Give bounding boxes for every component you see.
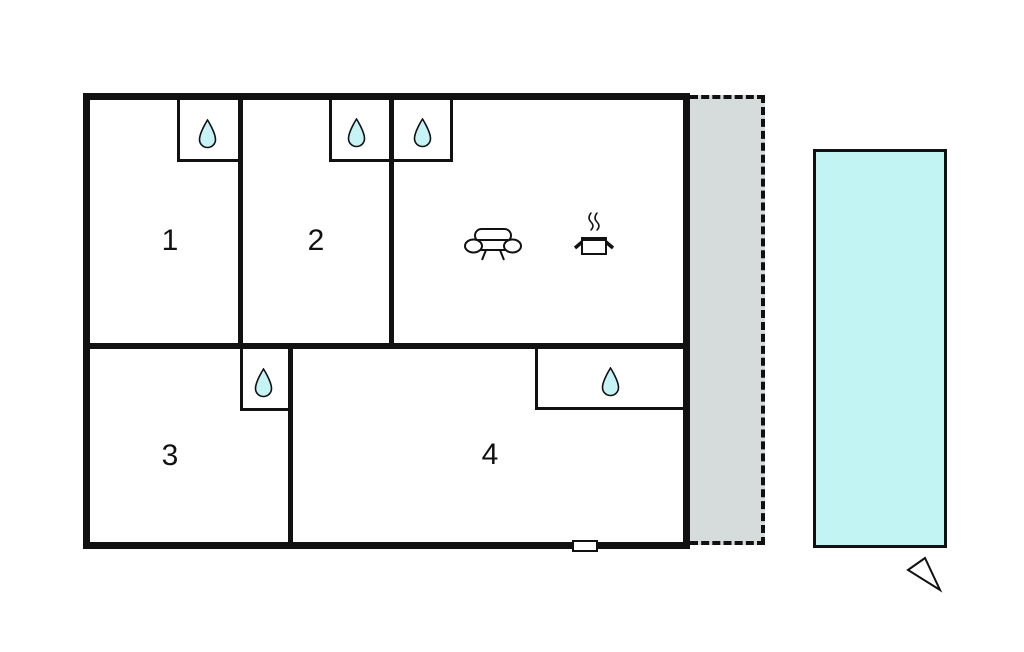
- compass-arrow-icon: [902, 552, 946, 596]
- cooking-pot-icon: [570, 211, 618, 259]
- swimming-pool: [813, 149, 947, 548]
- sofa-icon: [464, 228, 522, 262]
- terrace-area: [690, 95, 765, 545]
- water-drop-icon: [413, 118, 432, 148]
- wall-between-room1-room2: [238, 100, 243, 345]
- room-3-label: 3: [150, 436, 190, 476]
- room-2-label: 2: [296, 221, 336, 261]
- floor-plan: 1 2 3 4: [0, 0, 1024, 652]
- wall-between-room3-room4: [288, 349, 293, 542]
- water-drop-icon: [198, 119, 217, 149]
- water-drop-icon: [601, 367, 620, 397]
- water-drop-icon: [254, 368, 273, 398]
- room-4-label: 4: [470, 435, 510, 475]
- water-drop-icon: [347, 118, 366, 148]
- room-1-label: 1: [150, 221, 190, 261]
- door-opening: [572, 540, 598, 552]
